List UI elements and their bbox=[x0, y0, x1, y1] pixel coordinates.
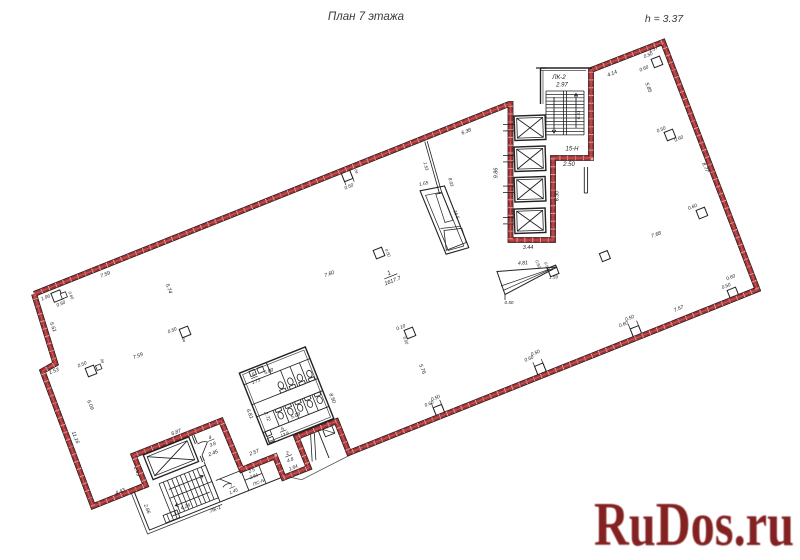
svg-text:дв: дв bbox=[181, 337, 187, 343]
svg-text:7.59: 7.59 bbox=[132, 352, 144, 361]
svg-text:7.59: 7.59 bbox=[100, 270, 112, 279]
svg-text:3.44: 3.44 bbox=[523, 245, 534, 251]
svg-text:0.50: 0.50 bbox=[384, 248, 392, 258]
svg-text:5.74: 5.74 bbox=[164, 283, 173, 295]
svg-text:дв: дв bbox=[99, 358, 105, 364]
svg-text:План 7 этажа: План 7 этажа bbox=[328, 11, 404, 23]
svg-text:5.09: 5.09 bbox=[290, 411, 301, 420]
svg-text:15-Н: 15-Н bbox=[565, 147, 579, 153]
svg-text:5.85: 5.85 bbox=[643, 82, 652, 94]
svg-text:0.50: 0.50 bbox=[530, 349, 541, 358]
svg-text:2.50: 2.50 bbox=[562, 162, 575, 168]
svg-text:8.50: 8.50 bbox=[327, 393, 336, 405]
svg-text:1.59: 1.59 bbox=[549, 275, 558, 280]
svg-text:1617.7: 1617.7 bbox=[384, 275, 403, 287]
svg-text:6.81: 6.81 bbox=[245, 408, 254, 420]
svg-text:6.51: 6.51 bbox=[576, 110, 581, 119]
svg-text:0.60: 0.60 bbox=[67, 291, 75, 301]
svg-text:6.09: 6.09 bbox=[85, 399, 94, 411]
svg-text:3.8: 3.8 bbox=[209, 441, 218, 449]
svg-text:7.68: 7.68 bbox=[651, 230, 663, 239]
svg-text:4.81: 4.81 bbox=[518, 260, 529, 267]
svg-text:ЛК-2: ЛК-2 bbox=[551, 74, 566, 81]
svg-text:4.14: 4.14 bbox=[607, 69, 619, 78]
svg-text:7.57: 7.57 bbox=[673, 304, 686, 314]
svg-text:дв: дв bbox=[353, 168, 359, 174]
svg-text:2.45: 2.45 bbox=[207, 449, 220, 459]
svg-text:4.8: 4.8 bbox=[286, 456, 295, 464]
svg-text:0.50: 0.50 bbox=[430, 394, 441, 403]
svg-text:0.50: 0.50 bbox=[167, 326, 178, 335]
svg-text:2.97: 2.97 bbox=[555, 83, 568, 89]
svg-text:h = 3.37: h = 3.37 bbox=[645, 13, 684, 25]
svg-text:16.5: 16.5 bbox=[452, 209, 460, 220]
svg-text:1.65: 1.65 bbox=[419, 180, 430, 188]
svg-text:6.30: 6.30 bbox=[555, 191, 561, 202]
svg-text:0.50: 0.50 bbox=[505, 300, 514, 305]
svg-text:5.61: 5.61 bbox=[48, 321, 57, 333]
svg-text:1.53: 1.53 bbox=[422, 161, 429, 171]
svg-text:8.03: 8.03 bbox=[447, 177, 454, 187]
svg-text:6.38: 6.38 bbox=[461, 127, 473, 136]
svg-text:2.57: 2.57 bbox=[248, 448, 262, 458]
svg-text:0.50: 0.50 bbox=[624, 314, 635, 323]
svg-text:5.76: 5.76 bbox=[417, 363, 426, 375]
svg-text:1.96: 1.96 bbox=[40, 293, 51, 302]
svg-text:7.60: 7.60 bbox=[324, 270, 336, 279]
svg-text:0.60: 0.60 bbox=[639, 64, 650, 73]
svg-text:0.60: 0.60 bbox=[725, 273, 736, 282]
svg-text:RuDos.ru: RuDos.ru bbox=[594, 491, 794, 559]
svg-text:9.86: 9.86 bbox=[494, 168, 500, 179]
